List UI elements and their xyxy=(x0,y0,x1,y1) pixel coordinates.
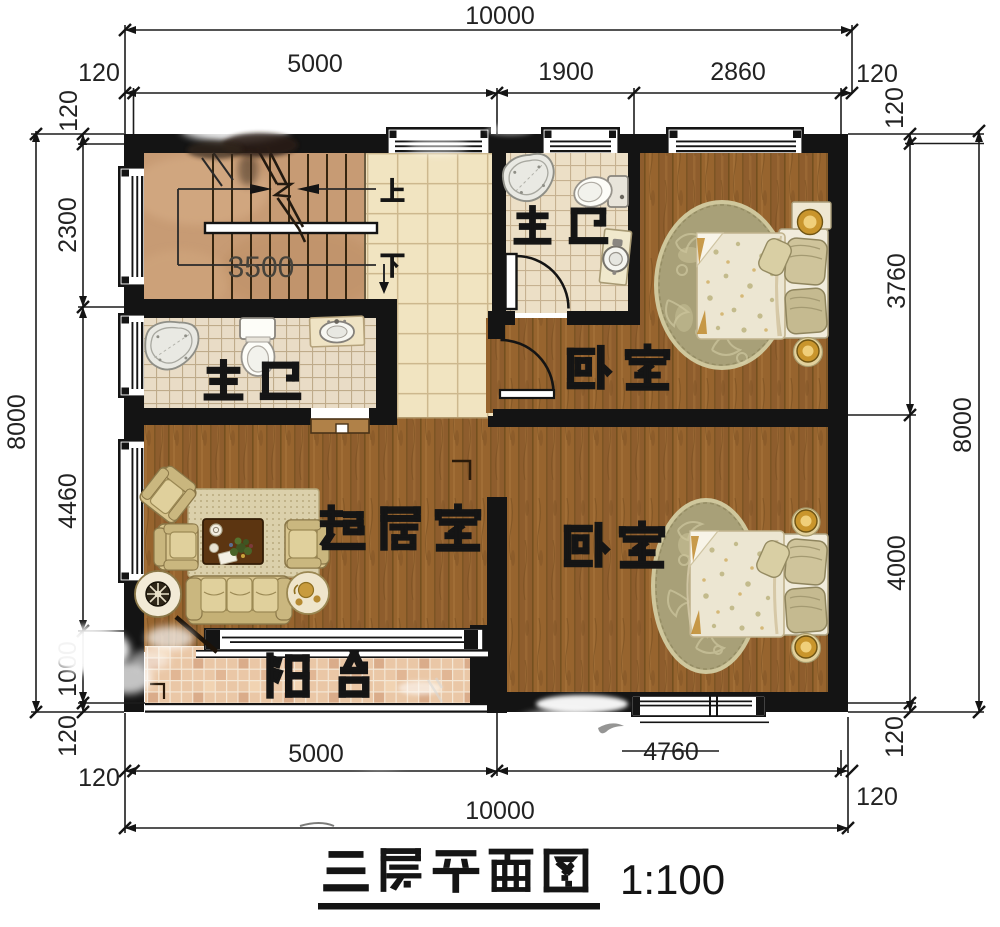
svg-text:120: 120 xyxy=(856,60,898,88)
svg-text:2300: 2300 xyxy=(54,197,82,253)
svg-text:120: 120 xyxy=(881,87,909,129)
svg-text:120: 120 xyxy=(78,764,120,792)
svg-text:4460: 4460 xyxy=(54,473,82,529)
svg-text:120: 120 xyxy=(856,783,898,811)
svg-text:8000: 8000 xyxy=(3,394,31,450)
svg-text:1:100: 1:100 xyxy=(620,856,725,903)
svg-text:5000: 5000 xyxy=(287,50,343,78)
svg-text:120: 120 xyxy=(54,715,82,757)
svg-text:10000: 10000 xyxy=(465,2,535,30)
svg-text:4760: 4760 xyxy=(643,738,699,766)
svg-text:3760: 3760 xyxy=(883,253,911,309)
svg-text:1900: 1900 xyxy=(538,58,594,86)
svg-text:2860: 2860 xyxy=(710,58,766,86)
svg-text:10000: 10000 xyxy=(465,797,535,825)
svg-text:3500: 3500 xyxy=(228,251,295,284)
svg-text:4000: 4000 xyxy=(883,535,911,591)
svg-text:120: 120 xyxy=(55,90,83,132)
svg-text:120: 120 xyxy=(78,59,120,87)
svg-text:120: 120 xyxy=(881,716,909,758)
svg-text:8000: 8000 xyxy=(949,397,977,453)
svg-text:5000: 5000 xyxy=(288,740,344,768)
